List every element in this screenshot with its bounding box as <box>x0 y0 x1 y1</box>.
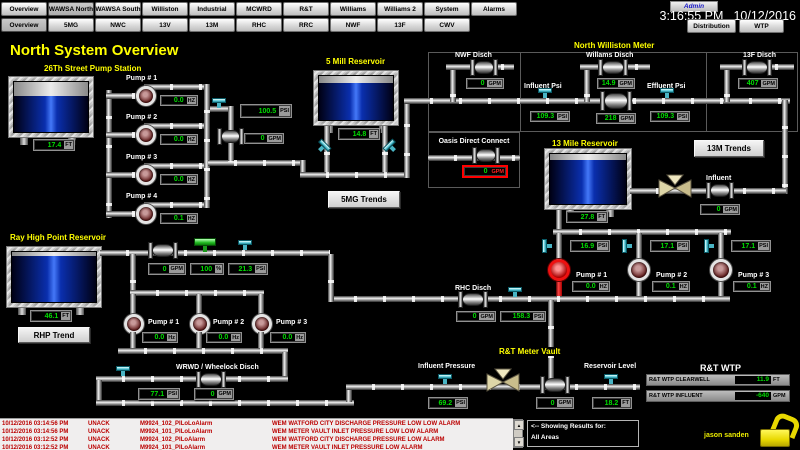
rtv-influent-valve-icon[interactable] <box>438 374 452 384</box>
s26-flow-meter-icon <box>221 130 240 143</box>
nwf-disch-label: NWF Disch <box>455 52 492 59</box>
rhp-tank <box>6 246 102 308</box>
m13-influent-gpm-display: 0GPM <box>700 204 740 215</box>
hmi-screen: Overview WAWSA North WAWSA South Willist… <box>0 0 800 450</box>
subtab-5mg[interactable]: 5MG <box>48 18 94 32</box>
m13-level-display: 27.8FT <box>566 211 608 223</box>
tab-alarms[interactable]: Alarms <box>471 2 517 16</box>
pipe <box>724 68 730 102</box>
s26-valve-icon[interactable] <box>212 98 226 108</box>
alarm-scrollbar[interactable]: ▲ ▼ <box>513 419 523 448</box>
rtwtp-clearwell-value: 11.9 <box>735 376 771 384</box>
tab-williams2[interactable]: Williams 2 <box>377 2 423 16</box>
tab-industrial[interactable]: Industrial <box>189 2 235 16</box>
pipe <box>106 90 112 218</box>
oasis-label: Oasis Direct Connect <box>430 138 518 145</box>
m13-pump3-label: Pump # 3 <box>738 272 769 279</box>
subtab-rhc[interactable]: RHC <box>236 18 282 32</box>
pipe <box>196 294 202 316</box>
m13-pump1-label: Pump # 1 <box>576 272 607 279</box>
scroll-up-icon[interactable]: ▲ <box>514 420 524 430</box>
mill5-tank <box>313 70 399 126</box>
m13-psi2-display: 17.1PSI <box>650 240 690 252</box>
willams-gpm-display: 14.9GPM <box>597 78 635 89</box>
rhp-psi-display: 21.3PSI <box>228 263 268 275</box>
rhp-pump2-icon[interactable] <box>190 314 210 334</box>
pipe <box>782 100 788 194</box>
pipe <box>106 172 138 178</box>
alarm-row[interactable]: 10/12/2016 03:12:52 PMUNACKM9924_101_PIL… <box>0 444 513 450</box>
rhc-valve-icon[interactable] <box>508 287 522 297</box>
tab-williston[interactable]: Williston <box>142 2 188 16</box>
rhp-pump1-hz-display: 0.0Hz <box>142 332 178 343</box>
s26-pump1-label: Pump # 1 <box>126 75 157 82</box>
alarm-row[interactable]: 10/12/2016 03:12:52 PMUNACKM9924_102_PIL… <box>0 436 513 444</box>
pipe <box>106 93 138 99</box>
subtab-13f[interactable]: 13F <box>377 18 423 32</box>
tab-rt[interactable]: R&T <box>283 2 329 16</box>
tank-leg <box>20 138 28 145</box>
s26-pump4-icon[interactable] <box>136 204 156 224</box>
m13-influent-meter-icon <box>710 184 730 197</box>
m13-branch2-valve-icon[interactable] <box>622 239 632 253</box>
tank-leg <box>76 308 84 315</box>
alarm-filter-info: <-- Showing Results for: All Areas <box>527 420 639 447</box>
pipe <box>548 300 554 388</box>
rhp-level-display: 46.1FT <box>30 310 72 322</box>
pipe <box>208 160 306 166</box>
rtwtp-title: R&T WTP <box>700 363 741 373</box>
s26-pump2-hz-display: 0.0HZ <box>160 134 198 145</box>
m13-pump1-hz-display: 0.0HZ <box>572 281 610 292</box>
rhp-pump1-icon[interactable] <box>124 314 144 334</box>
subtab-nwf[interactable]: NWF <box>330 18 376 32</box>
13m-trends-button[interactable]: 13M Trends <box>694 140 764 157</box>
pipe <box>258 294 264 316</box>
pipe <box>130 294 136 316</box>
wrwd-gpm-display: 0GPM <box>194 388 234 400</box>
pipe <box>118 348 288 354</box>
tab-system[interactable]: System <box>424 2 470 16</box>
rhp-control-valve-icon[interactable] <box>194 238 216 252</box>
s26-level-display: 17.4FT <box>33 139 75 151</box>
pipe <box>300 172 408 178</box>
rtwtp-influent-value: -640 <box>735 392 771 400</box>
pipe <box>96 400 354 406</box>
m13-pump2-label: Pump # 2 <box>656 272 687 279</box>
influent-psi-valve-icon[interactable] <box>538 88 552 98</box>
wtp-button[interactable]: WTP <box>739 19 784 33</box>
subtab-overview[interactable]: Overview <box>1 18 47 32</box>
rhp-pump3-icon[interactable] <box>252 314 272 334</box>
rhc-psi-display: 158.3PSI <box>500 311 546 322</box>
rtwtp-clearwell-row: R&T WTP CLEARWELL 11.9 FT <box>646 374 790 386</box>
m13-pump2-hz-display: 0.1HZ <box>652 281 690 292</box>
rtv-title: R&T Meter Vault <box>497 347 562 356</box>
m13-branch3-valve-icon[interactable] <box>704 239 714 253</box>
m13-prv-icon[interactable] <box>658 174 692 205</box>
pipe <box>328 254 334 302</box>
tab-overview[interactable]: Overview <box>1 2 47 16</box>
m13-pump3-icon[interactable] <box>710 259 732 281</box>
willams-flow-meter-icon <box>602 61 624 74</box>
pipe <box>204 84 210 208</box>
subtab-cwv[interactable]: CWV <box>424 18 470 32</box>
13f-gpm-display: 407GPM <box>738 78 778 89</box>
rhp-gpm-display: 0GPM <box>148 263 186 275</box>
pipe <box>346 388 352 402</box>
13f-disch-label: 13F Disch <box>743 52 776 59</box>
pipe <box>282 352 288 378</box>
effluent-psi-display: 109.3PSI <box>650 111 690 122</box>
s26-pump3-icon[interactable] <box>136 165 156 185</box>
pipe <box>404 98 410 178</box>
pipe <box>106 132 138 138</box>
13f-flow-meter-icon <box>746 61 768 74</box>
mill5-level-display: 14.8FT <box>338 128 380 140</box>
panel-divider <box>520 52 521 132</box>
s26-pump1-hz-display: 0.0HZ <box>160 95 198 106</box>
m13-title: 13 Mile Reservoir <box>550 139 620 148</box>
distribution-button[interactable]: Distribution <box>687 19 736 33</box>
alarm-row[interactable]: 10/12/2016 03:14:56 PMUNACKM9924_101_PIL… <box>0 428 513 436</box>
subtab-nwc[interactable]: NWC <box>95 18 141 32</box>
s26-gpm-display: 0GPM <box>244 133 284 144</box>
m13-psi1-display: 16.9PSI <box>570 240 610 252</box>
m13-influent-label: Influent <box>706 175 731 182</box>
rhp-pump3-hz-display: 0.0Hz <box>270 332 306 343</box>
subtab-rrc[interactable]: RRC <box>283 18 329 32</box>
tab-wawsa-south[interactable]: WAWSA South <box>95 2 141 16</box>
rhp-flow-meter-icon <box>152 244 174 257</box>
lock-icon[interactable] <box>758 416 798 448</box>
wrwd-label: WRWD / Wheelock Disch <box>176 364 259 371</box>
rtv-influent-psi-display: 69.2PSI <box>428 397 468 409</box>
s26-pump1-icon[interactable] <box>136 86 156 106</box>
s26-pump2-icon[interactable] <box>136 125 156 145</box>
rtv-reservoir-ft-display: 18.2FT <box>592 397 632 409</box>
scroll-down-icon[interactable]: ▼ <box>514 437 524 447</box>
wrwd-valve-icon[interactable] <box>116 366 130 376</box>
nwf-flow-meter-icon <box>474 61 494 74</box>
s26-pump4-label: Pump # 4 <box>126 193 157 200</box>
influent-psi-display: 109.3PSI <box>530 111 570 122</box>
tab-mcwrd[interactable]: MCWRD <box>236 2 282 16</box>
rtv-prv-icon[interactable] <box>486 368 520 399</box>
pipe <box>404 98 790 104</box>
rhp-pump3-label: Pump # 3 <box>276 319 307 326</box>
pipe <box>328 296 730 302</box>
mill5-title: 5 Mill Reservoir <box>324 57 387 66</box>
s26-pump2-label: Pump # 2 <box>126 114 157 121</box>
nwm-flow-meter-icon <box>604 93 628 109</box>
panel-divider <box>706 52 707 132</box>
m13-pump3-hz-display: 0.1HZ <box>733 281 771 292</box>
nwm-title: North Williston Meter <box>572 41 656 50</box>
alarm-row[interactable]: 10/12/2016 03:14:56 PMUNACKM9924_102_PIL… <box>0 420 513 428</box>
pipe <box>450 68 456 102</box>
wrwd-psi-display: 77.1PSI <box>138 388 180 400</box>
s26-pump4-hz-display: 0.1HZ <box>160 213 198 224</box>
page-title: North System Overview <box>10 42 178 59</box>
rtwtp-influent-row: R&T WTP INFLUENT -640 GPM <box>646 390 790 402</box>
rtv-reservoir-valve-icon[interactable] <box>604 374 618 384</box>
s26-pump3-hz-display: 0.0HZ <box>160 174 198 185</box>
m13-tank <box>544 148 632 210</box>
tank-leg <box>18 308 26 315</box>
nwf-gpm-display: 0GPM <box>466 78 504 89</box>
rhp-pump2-label: Pump # 2 <box>213 319 244 326</box>
s26-title: 26Th Street Pump Station <box>42 64 143 73</box>
rtv-gpm-display: 0GPM <box>536 397 574 409</box>
m13-pump2-icon[interactable] <box>628 259 650 281</box>
rhp-trend-button[interactable]: RHP Trend <box>18 327 90 343</box>
tab-williams[interactable]: Williams <box>330 2 376 16</box>
rtv-flow-meter-icon <box>544 378 566 392</box>
wrwd-flow-meter-icon <box>200 373 222 386</box>
alarm-list[interactable]: 10/12/2016 03:14:56 PMUNACKM9924_102_PIL… <box>0 418 513 450</box>
rhc-gpm-display: 0GPM <box>456 311 496 322</box>
rhp-title: Ray High Point Reservoir <box>8 233 108 242</box>
m13-psi3-display: 17.1PSI <box>731 240 771 252</box>
pipe <box>106 211 138 217</box>
oasis-flow-meter-icon <box>476 149 496 162</box>
5mg-trends-button[interactable]: 5MG Trends <box>328 191 400 208</box>
m13-pump1-icon[interactable] <box>548 259 570 281</box>
rhp-pump2-hz-display: 0.0Hz <box>206 332 242 343</box>
nwm-flow-display: 218GPM <box>596 113 636 124</box>
effluent-psi-valve-icon[interactable] <box>660 88 674 98</box>
rhp-pump1-label: Pump # 1 <box>148 319 179 326</box>
rtv-reservoir-label: Reservoir Level <box>584 363 636 370</box>
s26-tank <box>8 76 94 138</box>
subtab-13m[interactable]: 13M <box>189 18 235 32</box>
pipe <box>584 68 590 102</box>
pipe <box>553 229 731 235</box>
rhp-pct-display: 100% <box>190 263 224 275</box>
rhc-flow-meter-icon <box>462 293 484 306</box>
s26-pump3-label: Pump # 3 <box>126 154 157 161</box>
logged-in-user: jason sanden <box>704 432 749 439</box>
m13-branch1-valve-icon[interactable] <box>542 239 552 253</box>
oasis-gpm-display: 0GPM <box>462 165 508 178</box>
rtv-influent-label: Influent Pressure <box>418 363 475 370</box>
rhp-valve-icon[interactable] <box>238 240 252 250</box>
s26-psi-display: 100.5PSI <box>240 104 292 118</box>
subtab-13v[interactable]: 13V <box>142 18 188 32</box>
tab-wawsa-north[interactable]: WAWSA North <box>48 2 94 16</box>
pipe <box>96 376 288 382</box>
willams-disch-label: Willams Disch <box>586 52 633 59</box>
